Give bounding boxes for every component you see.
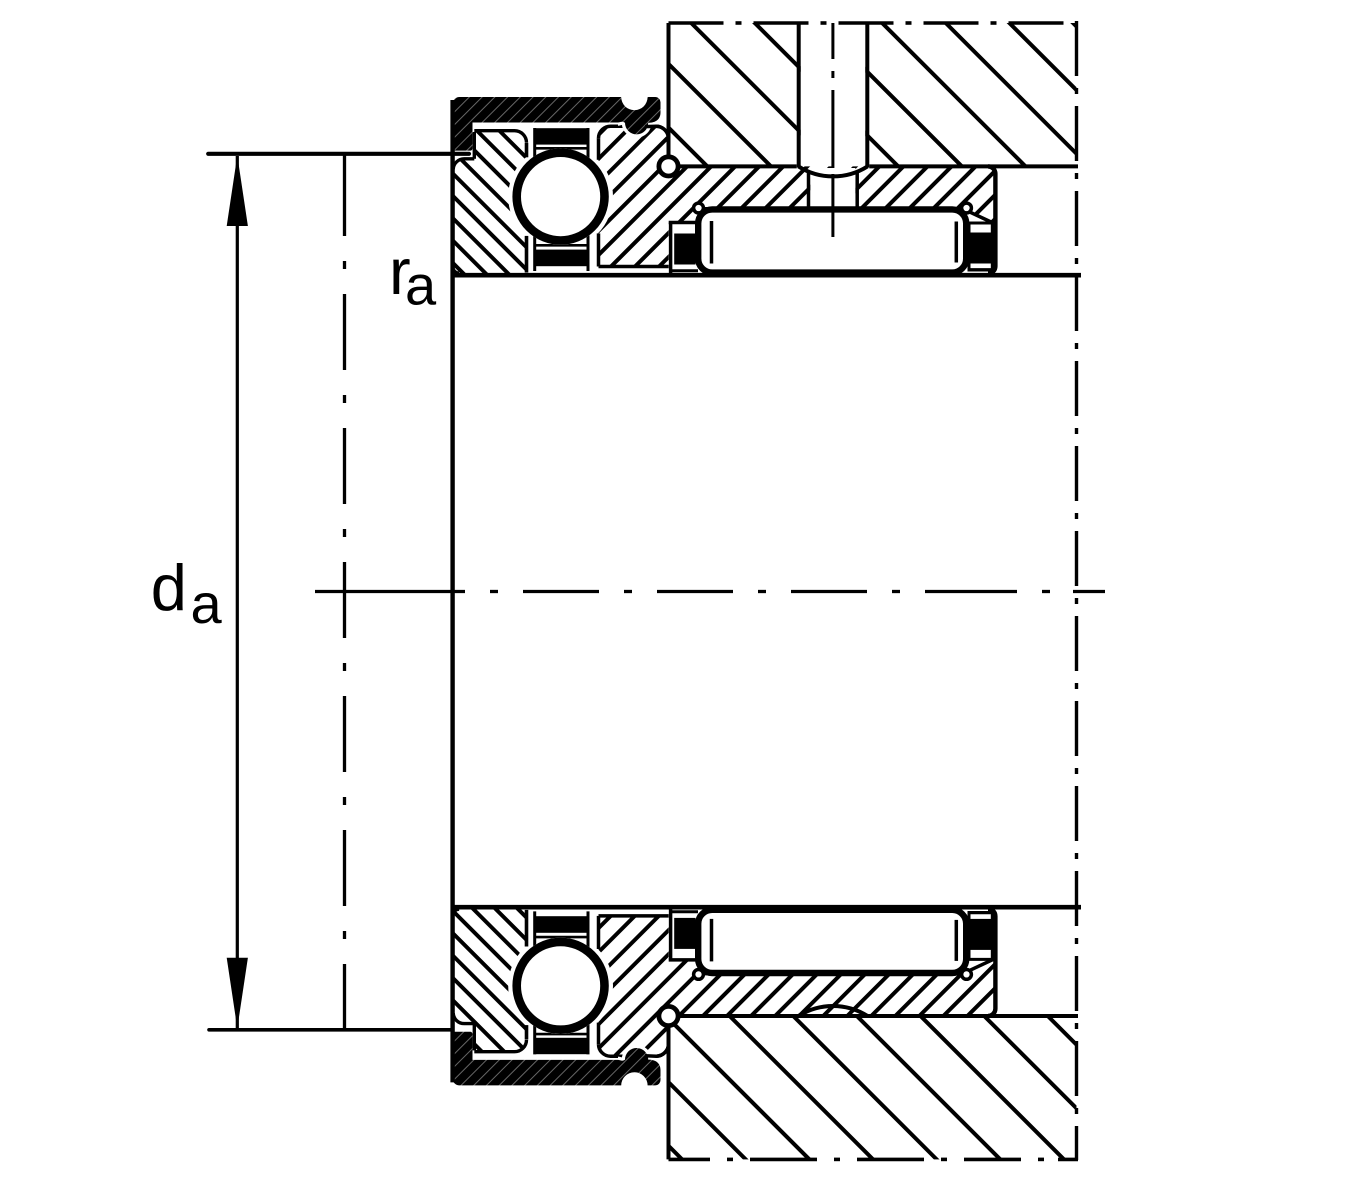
svg-text:d: d xyxy=(151,551,187,624)
svg-text:a: a xyxy=(405,254,437,317)
svg-text:a: a xyxy=(191,572,223,635)
